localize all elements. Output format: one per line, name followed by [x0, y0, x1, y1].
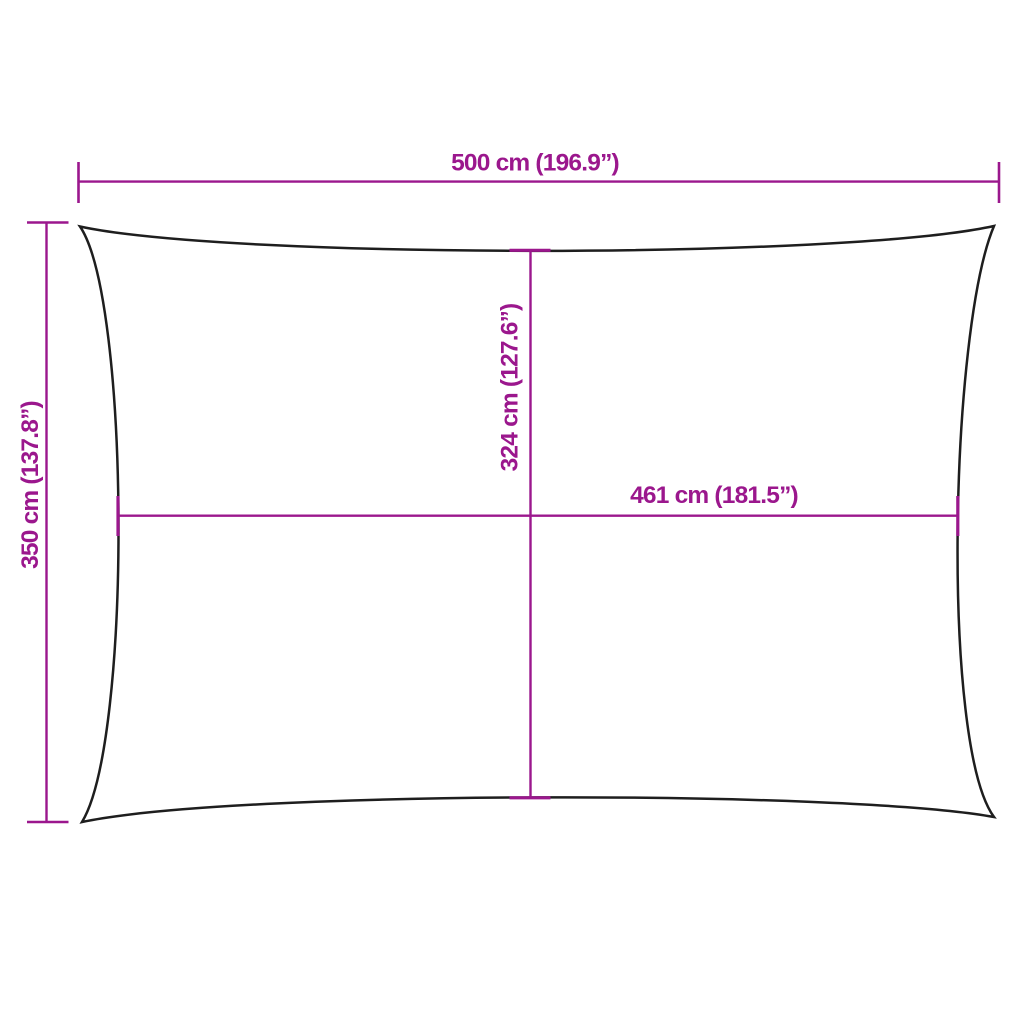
svg-text:461 cm (181.5”): 461 cm (181.5”)	[630, 482, 798, 509]
svg-text:350 cm (137.8”): 350 cm (137.8”)	[17, 401, 44, 569]
svg-text:500 cm (196.9”): 500 cm (196.9”)	[451, 149, 619, 176]
svg-text:324 cm (127.6”): 324 cm (127.6”)	[496, 304, 523, 472]
